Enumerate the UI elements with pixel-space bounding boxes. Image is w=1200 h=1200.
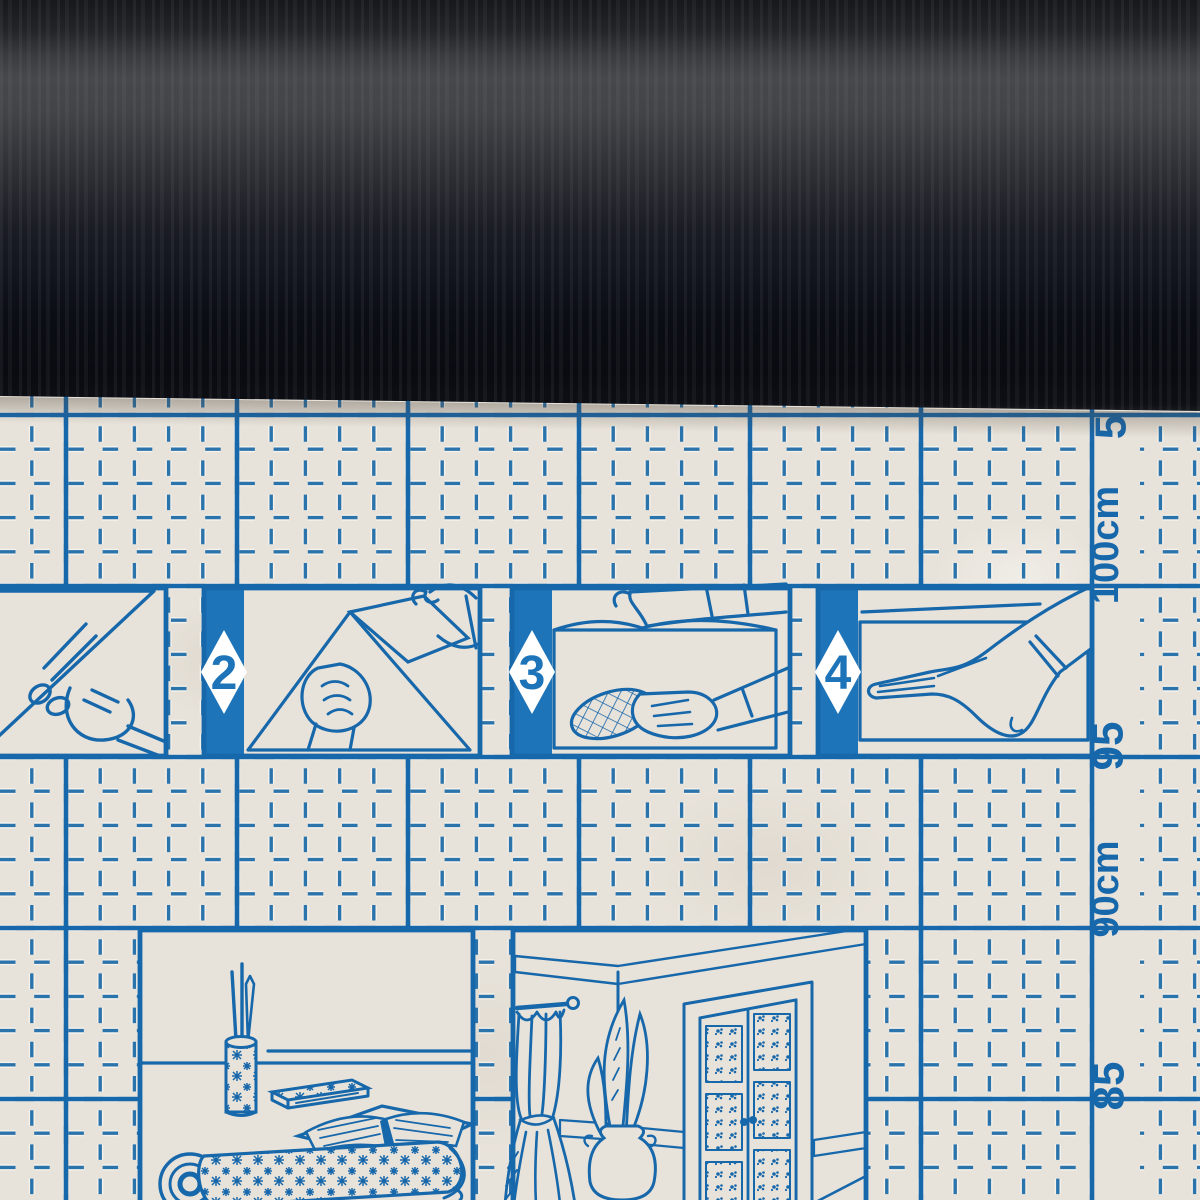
room-vignette [505, 928, 866, 1200]
desk-vignette [140, 930, 473, 1200]
step-2-number: 2 [211, 647, 238, 700]
step-panel-3-apply-film: 3 [509, 584, 790, 756]
instruction-panels: 2 [0, 584, 1092, 756]
product-photo: 2 [0, 0, 1200, 1200]
step-panel-4-smooth-film: 4 [815, 586, 1092, 756]
step-panel-2-peel-backing: 2 [201, 585, 480, 756]
step-panel-1-cut-film [0, 588, 166, 756]
rolled-dark-film [0, 0, 1200, 430]
step-3-number: 3 [519, 647, 546, 700]
step-4-number: 4 [825, 647, 852, 700]
ruler-label-95: 95 [1084, 722, 1133, 771]
door-knob [740, 1118, 748, 1126]
ruler-label-100cm: 100cm [1085, 486, 1127, 604]
ruler-label-90cm: 90cm [1085, 840, 1127, 937]
ruler-label-85: 85 [1085, 1062, 1134, 1111]
